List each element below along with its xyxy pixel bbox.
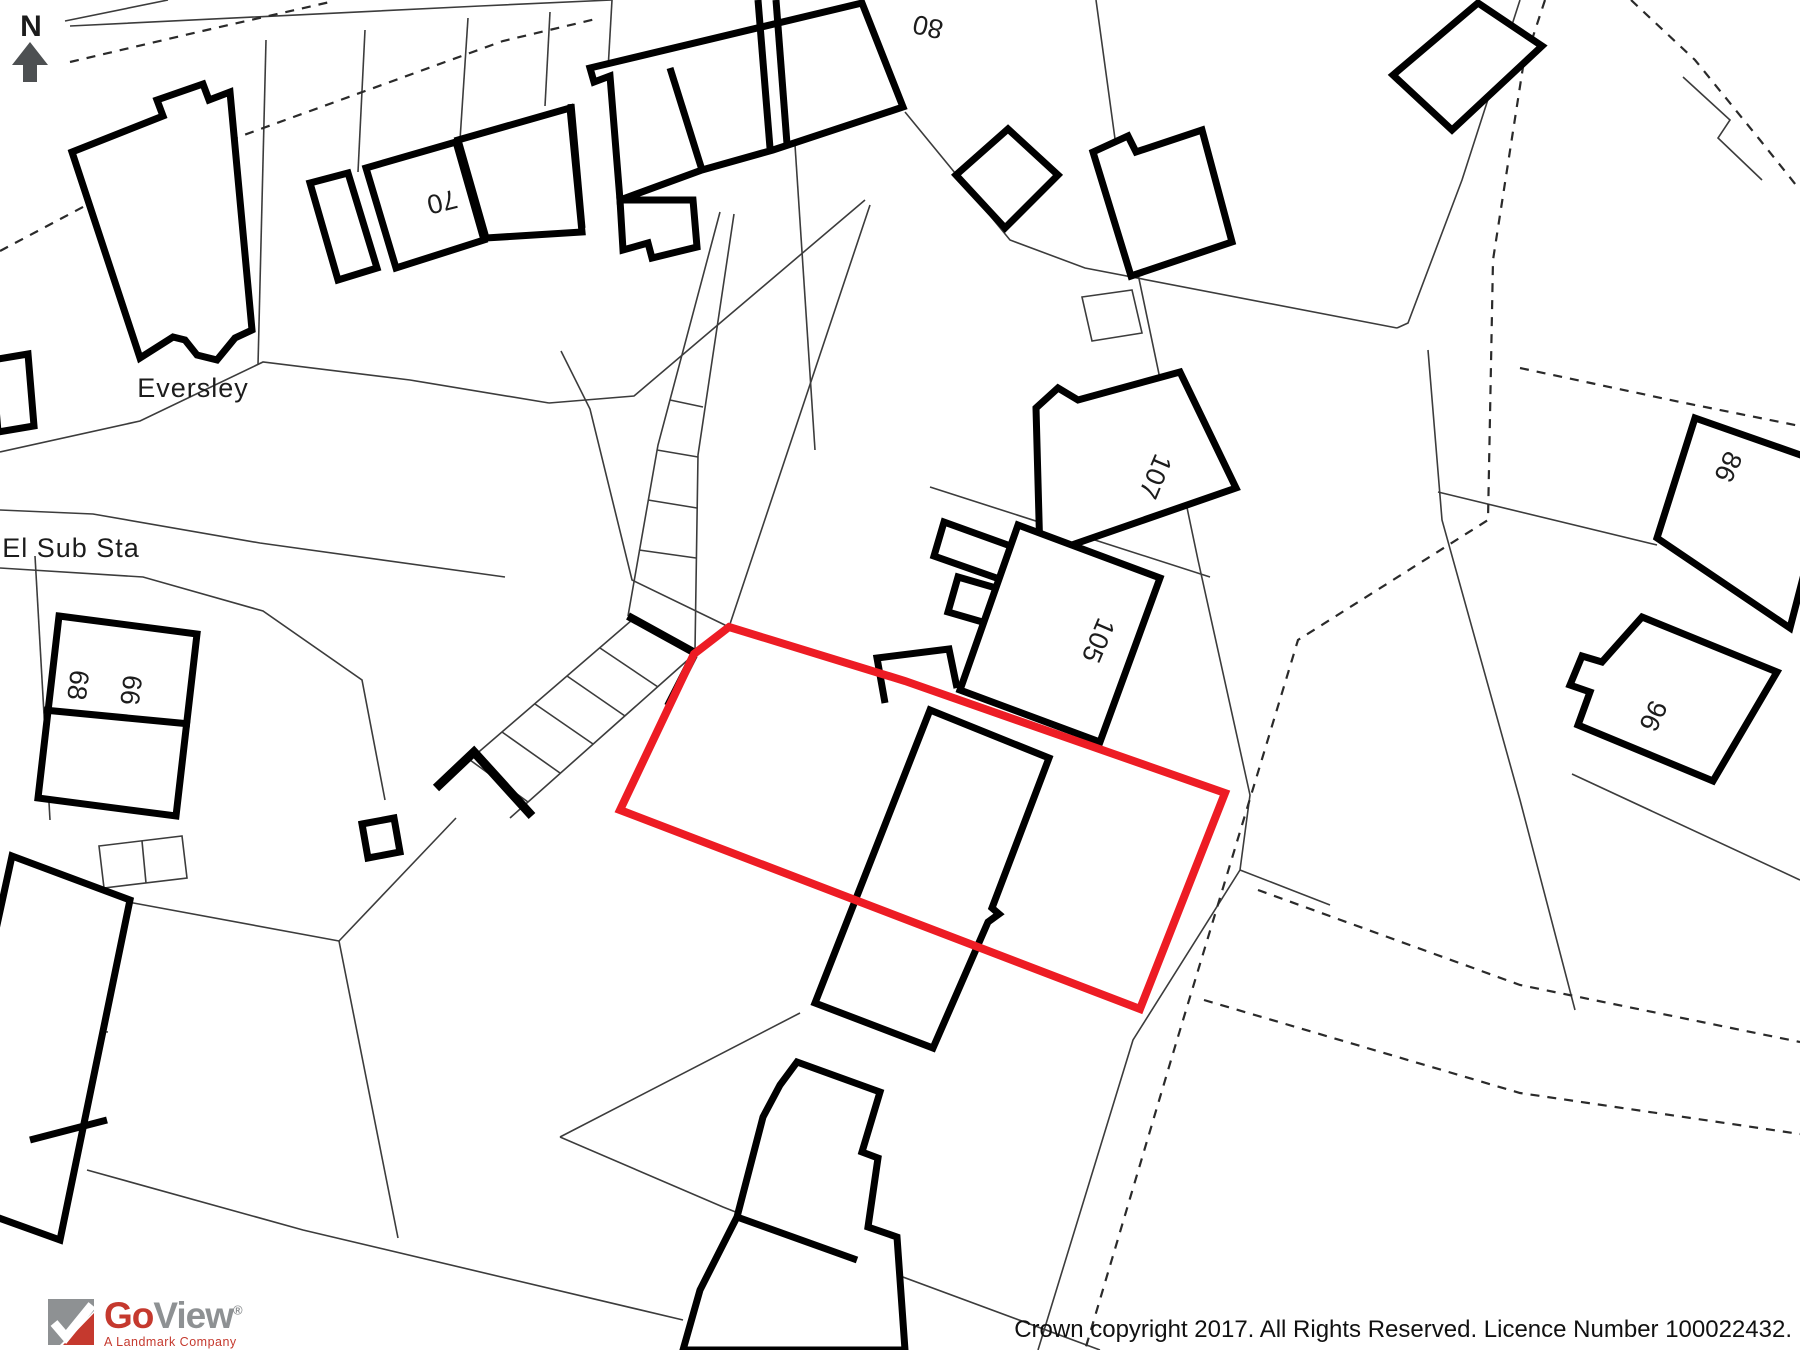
- building-no96: [1570, 617, 1777, 781]
- walls: [436, 616, 697, 816]
- copyright-notice: Crown copyright 2017. All Rights Reserve…: [1014, 1316, 1792, 1344]
- label-el-sub-sta: El Sub Sta: [2, 533, 140, 563]
- map-canvas: Eversley El Sub Sta 80 70 107 105 86 96 …: [0, 0, 1800, 1350]
- house-number-68: 68: [61, 668, 94, 701]
- building-terrace-center: [590, 3, 903, 200]
- north-arrow-icon: N: [12, 10, 48, 82]
- logo-wordmark: GoView®: [104, 1295, 242, 1336]
- label-eversley: Eversley: [137, 373, 249, 403]
- building-subject: [815, 710, 1049, 1048]
- dashed-road-lines: [0, 0, 1800, 1350]
- building-terrace-step: [620, 200, 697, 258]
- building-eversley: [72, 84, 252, 360]
- logo-go: Go: [104, 1295, 153, 1336]
- building-top-mid-a: [956, 129, 1058, 228]
- logo-registered-mark: ®: [233, 1302, 242, 1317]
- building-no107: [1036, 372, 1236, 556]
- buildings: [0, 0, 1800, 1350]
- site-plan-map: Eversley El Sub Sta 80 70 107 105 86 96 …: [0, 0, 1800, 1350]
- north-label: N: [20, 10, 42, 43]
- logo-view: View: [153, 1295, 233, 1336]
- building-top-mid-b: [1093, 130, 1232, 276]
- logo-tagline: A Landmark Company: [104, 1336, 242, 1349]
- building-left-edge: [0, 354, 34, 432]
- goview-logo-icon: [46, 1297, 96, 1347]
- building-garage-small: [362, 818, 400, 858]
- parcel-lines: [0, 0, 1800, 1350]
- house-number-80: 80: [910, 9, 946, 45]
- building-bottom-left: [0, 856, 130, 1240]
- house-number-66: 66: [114, 673, 147, 706]
- footpath-steps: [452, 212, 734, 818]
- goview-logo: GoView® A Landmark Company: [46, 1297, 242, 1349]
- building-top-right: [1393, 3, 1542, 130]
- building-terrace-garage: [310, 173, 377, 280]
- building-bottom-center: [683, 1062, 905, 1350]
